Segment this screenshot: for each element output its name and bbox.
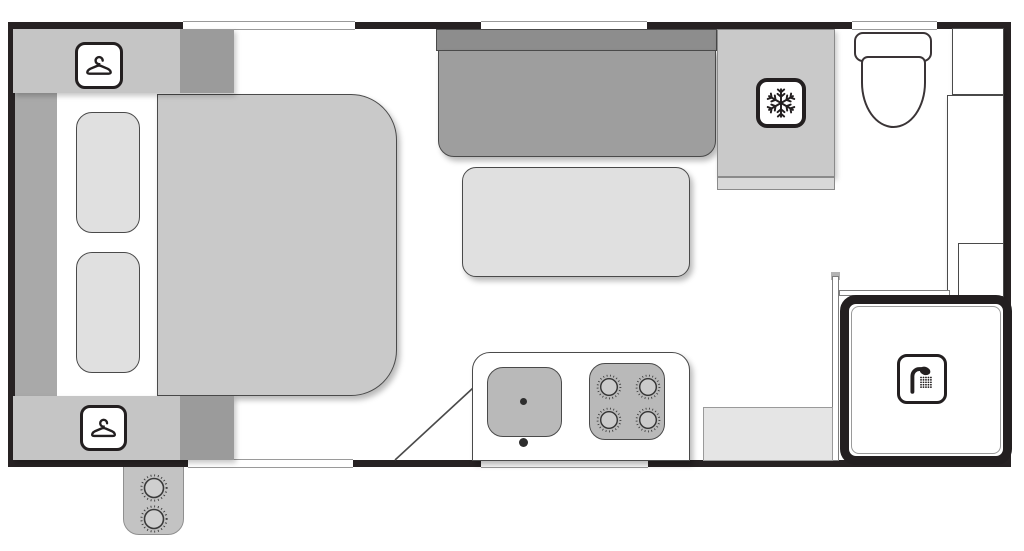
- wardrobe-bottom: [13, 396, 234, 460]
- burner-dial-icon: [590, 364, 663, 438]
- cabinet-small: [958, 243, 1004, 297]
- hanger-icon: [75, 42, 123, 89]
- bedside-shelf: [15, 93, 57, 397]
- hanger-icon: [80, 405, 127, 451]
- caravan-floorplan: [0, 0, 1024, 551]
- wardrobe-bottom-dark-section: [180, 396, 234, 460]
- fridge-bench-edge: [717, 177, 835, 190]
- dinette-table: [462, 167, 690, 277]
- sink-drain: [520, 398, 527, 405]
- pillow: [76, 112, 140, 233]
- dinette-sofa-seat: [438, 50, 716, 157]
- window-top-toilet: [852, 21, 937, 30]
- dinette-sofa-backrest: [436, 29, 717, 51]
- wardrobe-top: [13, 29, 234, 93]
- external-cooker: [123, 462, 184, 535]
- toilet-bowl: [861, 56, 926, 128]
- shower-head-icon: [897, 354, 947, 404]
- partition-wall-vertical: [832, 276, 839, 461]
- bed: [157, 94, 397, 396]
- angled-bench-end: [390, 383, 478, 463]
- burner-dial-icon: [124, 463, 183, 534]
- bathroom-bench: [703, 407, 833, 461]
- snowflake-icon: [756, 78, 806, 128]
- wardrobe-top-dark-section: [180, 29, 234, 93]
- shower-cubicle: [840, 295, 1012, 465]
- cabinet-top: [952, 28, 1004, 95]
- entry-door-opening: [188, 459, 353, 468]
- tap: [519, 438, 528, 447]
- pillow: [76, 252, 140, 373]
- cooktop: [589, 363, 665, 440]
